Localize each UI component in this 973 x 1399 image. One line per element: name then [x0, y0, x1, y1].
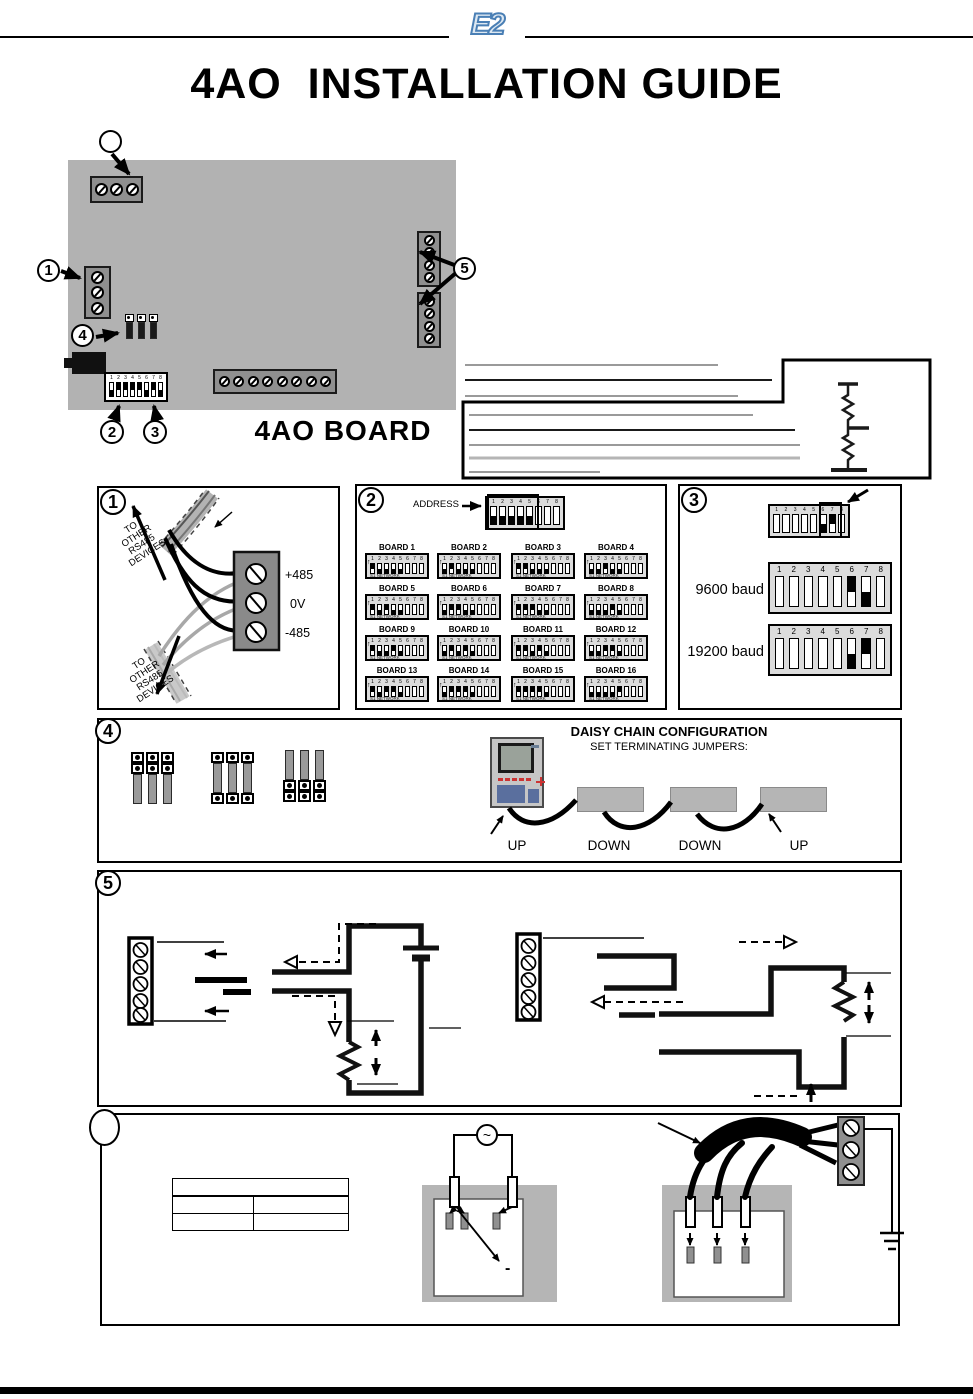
screw-icon [424, 260, 435, 271]
dip-rocker [558, 645, 563, 656]
dip-rocker [412, 563, 417, 574]
dip-rocker [137, 382, 142, 397]
jumper-body [285, 750, 294, 780]
dip-rocker [484, 604, 489, 615]
callout-4: 4 [71, 324, 94, 347]
on-arrow-icon: ↑ [439, 600, 443, 607]
jumper-body [228, 763, 237, 793]
dip-rocker [775, 638, 784, 669]
on-arrow-icon: ↑ [513, 559, 517, 566]
on-arrow-icon: ↑ [586, 682, 590, 689]
svg-text:TO: TO [131, 656, 148, 672]
on-arrow-icon: ↑ [586, 641, 590, 648]
dip-rocker [130, 382, 135, 397]
dip-rocker [631, 645, 636, 656]
jumper-body [148, 774, 157, 804]
plus-icon [536, 777, 545, 786]
board-address-6: BOARD 612345678↑S1 NETWORK [437, 584, 501, 620]
dip-rocker [558, 604, 563, 615]
svg-text:RS485: RS485 [135, 668, 165, 693]
table-row [173, 1196, 348, 1213]
dip-rocker [818, 576, 827, 607]
board-address-9: BOARD 912345678↑S1 NETWORK [365, 625, 429, 661]
screw-icon [424, 308, 435, 319]
screw-icon [233, 376, 244, 387]
dip-rocker [565, 604, 570, 615]
section-5-output-wiring: 5 [97, 870, 902, 1107]
dip-switch: 12345678↑S1 NETWORK [511, 594, 575, 620]
footer-rule [0, 1387, 973, 1394]
svg-text:-: - [505, 1260, 510, 1277]
on-arrow-icon: ↑ [439, 641, 443, 648]
dip-rocker [789, 576, 798, 607]
dip-rocker [419, 686, 424, 697]
dip-rocker [804, 576, 813, 607]
terminal-label-0v: 0V [290, 597, 306, 611]
dip-rocker [551, 645, 556, 656]
jumper-cap [146, 752, 159, 763]
screw-icon [424, 235, 435, 246]
board-label: BOARD 11 [511, 625, 575, 635]
screw-icon [248, 376, 259, 387]
led-icon [519, 778, 524, 781]
jumper-cap [241, 793, 254, 804]
dip-switch: 12345678↑S1 NETWORK [365, 553, 429, 579]
jumper-cap [125, 314, 134, 322]
baud-9600-dip: 12345678 [768, 562, 892, 614]
power-terminal-block [90, 176, 143, 203]
dip-rocker [801, 514, 808, 533]
controller-logo-mark [531, 745, 539, 748]
on-arrow-icon: ↑ [586, 600, 590, 607]
dip-rocker [158, 382, 163, 397]
board-label: BOARD 2 [437, 543, 501, 553]
on-arrow-icon: ↑ [439, 559, 443, 566]
board-address-16: BOARD 1612345678↑S1 NETWORK [584, 666, 648, 702]
jumper-cap [226, 752, 239, 763]
e2-logo: E2 [449, 4, 525, 46]
dip-rocker [491, 604, 496, 615]
svg-text:OTHER: OTHER [120, 522, 154, 549]
table-cell [173, 1214, 253, 1230]
jumper-down [297, 750, 311, 802]
section-3-number: 3 [681, 487, 707, 513]
dip-switch: 12345678↑S1 NETWORK [437, 594, 501, 620]
dip-rocker [861, 576, 870, 607]
dip-rocker [123, 382, 128, 397]
dip-rocker [405, 686, 410, 697]
dip-rocker [638, 604, 643, 615]
board-label: BOARD 14 [437, 666, 501, 676]
screw-icon [277, 376, 288, 387]
network-label: S1 NETWORK [370, 655, 400, 660]
dip-rocker [833, 576, 842, 607]
board-address-11: BOARD 1112345678↑S1 NETWORK [511, 625, 575, 661]
board-address-1: BOARD 112345678↑S1 NETWORK [365, 543, 429, 579]
screw-icon [91, 302, 104, 315]
dip-numbers: 12345678 [772, 565, 888, 574]
daisy-chain-subtitle: SET TERMINATING JUMPERS: [539, 741, 799, 753]
jumper-body [213, 763, 222, 793]
jumper-cap [149, 314, 158, 322]
jumper-cap [211, 793, 224, 804]
transformer-diagram: ~ - [422, 1125, 557, 1302]
network-label: S1 NETWORK [442, 573, 472, 578]
dip-rocker [484, 686, 489, 697]
dip-switch: 12345678↑S1 NETWORK [584, 553, 648, 579]
jumper-cap [137, 314, 146, 322]
dip-rocker [477, 604, 482, 615]
dip-switch: 12345678↑S1 NETWORK [511, 676, 575, 702]
dip-rocker [491, 563, 496, 574]
resistor-divider [831, 384, 869, 470]
screw-icon [95, 183, 108, 196]
section-2-addressing: 2 ADDRESS 12345678 BOARD 112345678↑S1 NE… [355, 484, 667, 710]
left-schematic [129, 924, 461, 1093]
jumper-cap [131, 763, 144, 774]
power-jack [72, 352, 106, 374]
board-address-7: BOARD 712345678↑S1 NETWORK [511, 584, 575, 620]
network-label: S1 NETWORK [516, 573, 546, 578]
board-address-12: BOARD 1212345678↑S1 NETWORK [584, 625, 648, 661]
dip-rocker [144, 382, 149, 397]
dip-switch: 12345678↑S1 NETWORK [365, 676, 429, 702]
dip-rocker [151, 382, 156, 397]
controller-keypad [497, 785, 525, 803]
dip-rocker [861, 638, 870, 669]
board-address-3: BOARD 312345678↑S1 NETWORK [511, 543, 575, 579]
screw-icon [424, 333, 435, 344]
board-label: BOARD 6 [437, 584, 501, 594]
board-label: BOARD 4 [584, 543, 648, 553]
svg-text:OTHER: OTHER [128, 658, 162, 685]
section-5-number: 5 [95, 870, 121, 896]
board-address-14: BOARD 1412345678↑S1 NETWORK [437, 666, 501, 702]
dip-rocker [419, 563, 424, 574]
svg-text:~: ~ [483, 1127, 491, 1143]
board-label: BOARD 1 [365, 543, 429, 553]
controller-led-row [498, 778, 532, 781]
table-cell [173, 1179, 348, 1195]
table-row [173, 1213, 348, 1230]
analog-out-terminal-2 [417, 292, 441, 348]
dip-switch: 12345678↑S1 NETWORK [437, 676, 501, 702]
dip-rocker [412, 645, 417, 656]
board-address-13: BOARD 1312345678↑S1 NETWORK [365, 666, 429, 702]
board-label: BOARD 16 [584, 666, 648, 676]
jumper-body [138, 322, 145, 339]
dip-rocker [792, 514, 799, 533]
dip-rocker [477, 563, 482, 574]
dip-rocker [631, 686, 636, 697]
terminal-label-minus485: -485 [285, 626, 310, 640]
section-4-number: 4 [95, 718, 121, 744]
section-1-rs485-wiring: TO OTHER RS485 DEVICES TO OTHER RS485 DE… [97, 486, 340, 710]
dip-switch: 12345678↑S1 NETWORK [511, 553, 575, 579]
jumper-up [130, 752, 144, 804]
network-label: S1 NETWORK [442, 614, 472, 619]
dip-switch: 12345678↑S1 NETWORK [365, 635, 429, 661]
jumper-cap [313, 791, 326, 802]
board-label: BOARD 13 [365, 666, 429, 676]
jumper-up [145, 752, 159, 804]
dip-rocker [565, 563, 570, 574]
dip-rocker [477, 686, 482, 697]
dip-rocker [804, 638, 813, 669]
jumper-body [126, 322, 133, 339]
dip-rocker [558, 686, 563, 697]
section-power-wiring: ~ - [100, 1113, 900, 1326]
dip-rocker [558, 563, 563, 574]
dip-rocker [773, 514, 780, 533]
on-arrow-icon: ↑ [367, 559, 371, 566]
section-2-number: 2 [358, 487, 384, 513]
dip-rocker [405, 563, 410, 574]
on-arrow-icon: ↑ [586, 559, 590, 566]
callout-5: 5 [453, 257, 476, 280]
jumper-cap [241, 752, 254, 763]
jumper-cap [161, 763, 174, 774]
dip-rocker [551, 604, 556, 615]
dip-rocker [565, 686, 570, 697]
dip-rocker [818, 638, 827, 669]
board-jumper [146, 314, 160, 339]
dip-rocker [405, 604, 410, 615]
dip-rocker [412, 686, 417, 697]
terminal-label-plus485: +485 [285, 568, 313, 582]
dip-switch: 12345678↑S1 NETWORK [437, 553, 501, 579]
dip-rocker [819, 514, 826, 533]
callout-3: 3 [143, 420, 167, 444]
dip-switch: 12345678↑S1 NETWORK [584, 676, 648, 702]
screw-icon [291, 376, 302, 387]
board-address-8: BOARD 812345678↑S1 NETWORK [584, 584, 648, 620]
dip-rocker [477, 645, 482, 656]
rs485-terminal-block [84, 266, 111, 319]
dip-rocker [405, 645, 410, 656]
dip-rocker [847, 638, 856, 669]
led-icon [526, 778, 531, 781]
position-label-down-1: DOWN [579, 838, 639, 853]
board-address-10: BOARD 1012345678↑S1 NETWORK [437, 625, 501, 661]
dip-switch: 12345678↑S1 NETWORK [437, 635, 501, 661]
on-arrow-icon: ↑ [367, 600, 371, 607]
board-label: BOARD 12 [584, 625, 648, 635]
dip-rocker [491, 686, 496, 697]
screw-icon [424, 321, 435, 332]
dip-rocker [631, 604, 636, 615]
controller-keypad-small [528, 789, 539, 803]
section-1-number: 1 [100, 489, 126, 515]
dip-rocker [484, 563, 489, 574]
callout-1: 1 [37, 259, 60, 282]
table-row [173, 1179, 348, 1196]
network-label: S1 NETWORK [589, 614, 619, 619]
board-address-4: BOARD 412345678↑S1 NETWORK [584, 543, 648, 579]
dip-rocker [810, 514, 817, 533]
termination-note-figure [455, 350, 935, 485]
dip-rocker [829, 514, 836, 533]
screw-icon [126, 183, 139, 196]
analog-out-terminal-1 [417, 231, 441, 287]
cable-ground-diagram [658, 1117, 904, 1302]
dip-rocker [565, 645, 570, 656]
screw-icon [424, 247, 435, 258]
dip-rocker [775, 576, 784, 607]
jumper-body [243, 763, 252, 793]
jumper-cap [146, 763, 159, 774]
dip-rocker [484, 645, 489, 656]
led-icon [512, 778, 517, 781]
callout-power-section [89, 1109, 120, 1146]
network-label: S1 NETWORK [516, 655, 546, 660]
output-wiring-diagrams [99, 872, 899, 1104]
on-arrow-icon: ↑ [367, 682, 371, 689]
dip-rocker [419, 604, 424, 615]
dip-rocker [782, 514, 789, 533]
dip-rocker [847, 576, 856, 607]
screw-icon [262, 376, 273, 387]
position-label-up-2: UP [769, 838, 829, 853]
on-arrow-icon: ↑ [513, 682, 517, 689]
dip-rocker [638, 563, 643, 574]
dip-rocker [838, 514, 845, 533]
network-label: S1 NETWORK [589, 573, 619, 578]
right-schematic [517, 934, 891, 1102]
on-arrow-icon: ↑ [513, 641, 517, 648]
spec-table [172, 1178, 349, 1231]
board-label: BOARD 15 [511, 666, 575, 676]
network-label: S1 NETWORK [442, 696, 472, 701]
board-label: BOARD 7 [511, 584, 575, 594]
board-label: BOARD 10 [437, 625, 501, 635]
jumper-down [282, 750, 296, 802]
screw-icon [219, 376, 230, 387]
jumper-cap [298, 780, 311, 791]
network-label: S1 NETWORK [370, 614, 400, 619]
screw-icon [424, 296, 435, 307]
jumper-cap [211, 752, 224, 763]
board-label: BOARD 5 [365, 584, 429, 594]
jumper-body [163, 774, 172, 804]
dip-rocker [412, 604, 417, 615]
screw-icon [424, 272, 435, 283]
position-label-down-2: DOWN [670, 838, 730, 853]
callout-power [99, 130, 122, 153]
network-label: S1 NETWORK [516, 696, 546, 701]
page-title: 4AO INSTALLATION GUIDE [0, 60, 973, 109]
dip-switch: 12345678↑S1 NETWORK [511, 635, 575, 661]
network-label: S1 NETWORK [442, 655, 472, 660]
jumper-body [150, 322, 157, 339]
dip-rocker [624, 604, 629, 615]
dip-rocker [419, 645, 424, 656]
table-cell [173, 1197, 253, 1213]
rs485-wiring-diagram: TO OTHER RS485 DEVICES TO OTHER RS485 DE… [99, 488, 337, 707]
dip-rocker [491, 645, 496, 656]
callout-2: 2 [100, 420, 124, 444]
jumper-cap [283, 791, 296, 802]
on-arrow-icon: ↑ [513, 600, 517, 607]
installation-guide-page: E2 4AO INSTALLATION GUIDE 4AO BOARD [0, 0, 973, 1399]
e2-controller [490, 737, 544, 808]
position-label-up-1: UP [487, 838, 547, 853]
on-arrow-icon: ↑ [367, 641, 371, 648]
table-cell [253, 1214, 348, 1230]
dip-switch: 12345678↑S1 NETWORK [584, 594, 648, 620]
section-3-baud-rate: 3 12345678 9600 baud 12345678 19200 baud… [678, 484, 902, 710]
network-label: S1 NETWORK [516, 614, 546, 619]
dip-rocker [876, 576, 885, 607]
controller-screen [498, 743, 534, 773]
network-label: S1 NETWORK [370, 696, 400, 701]
chain-board-1 [577, 787, 644, 812]
led-icon [498, 778, 503, 781]
baud-9600-label: 9600 baud [686, 582, 764, 598]
svg-text:DEVICES: DEVICES [127, 537, 168, 569]
output-terminal-strip [213, 369, 337, 394]
chain-board-3 [760, 787, 827, 812]
jumper-body [300, 750, 309, 780]
daisy-chain-title: DAISY CHAIN CONFIGURATION [539, 724, 799, 739]
dip-switch: 12345678↑S1 NETWORK [584, 635, 648, 661]
board-address-grid: BOARD 112345678↑S1 NETWORKBOARD 21234567… [357, 486, 665, 708]
screw-icon [320, 376, 331, 387]
board-address-5: BOARD 512345678↑S1 NETWORK [365, 584, 429, 620]
on-arrow-icon: ↑ [439, 682, 443, 689]
dip-rocker [624, 563, 629, 574]
board-label: BOARD 9 [365, 625, 429, 635]
svg-text:DEVICES: DEVICES [135, 673, 176, 705]
board-title: 4AO BOARD [228, 415, 458, 447]
jumper-up [160, 752, 174, 804]
dip-rocker [876, 638, 885, 669]
jumper-middle [225, 752, 239, 804]
network-label: S1 NETWORK [589, 655, 619, 660]
baud-19200-label: 19200 baud [680, 644, 764, 660]
jumper-body [315, 750, 324, 780]
dip-rocker [551, 563, 556, 574]
jumper-cap [313, 780, 326, 791]
screw-icon [91, 286, 104, 299]
baud-dip-switch: 12345678 [768, 504, 850, 538]
dip-rocker [789, 638, 798, 669]
svg-text:RS485: RS485 [127, 532, 157, 557]
to-other-devices-top-label: TO OTHER RS485 DEVICES [111, 512, 168, 569]
dip-rocker [638, 645, 643, 656]
jumper-body [133, 774, 142, 804]
board-address-15: BOARD 1512345678↑S1 NETWORK [511, 666, 575, 702]
svg-text:TO: TO [123, 520, 140, 536]
jumper-middle [240, 752, 254, 804]
board-label: BOARD 8 [584, 584, 648, 594]
dip-numbers: 12345678 [772, 627, 888, 636]
board-dip-switch: 12345678 [104, 372, 168, 402]
dip-rocker [638, 686, 643, 697]
dip-rocker [833, 638, 842, 669]
network-label: S1 NETWORK [589, 696, 619, 701]
jumper-cap [131, 752, 144, 763]
screw-icon [306, 376, 317, 387]
dip-rocker [624, 686, 629, 697]
dip-rocker [624, 645, 629, 656]
power-jack-pin [64, 358, 73, 368]
dip-switch: 12345678↑S1 NETWORK [365, 594, 429, 620]
table-cell [253, 1197, 348, 1213]
to-other-devices-bottom-label: TO OTHER RS485 DEVICES [119, 648, 176, 705]
dip-rocker [631, 563, 636, 574]
jumper-cap [298, 791, 311, 802]
